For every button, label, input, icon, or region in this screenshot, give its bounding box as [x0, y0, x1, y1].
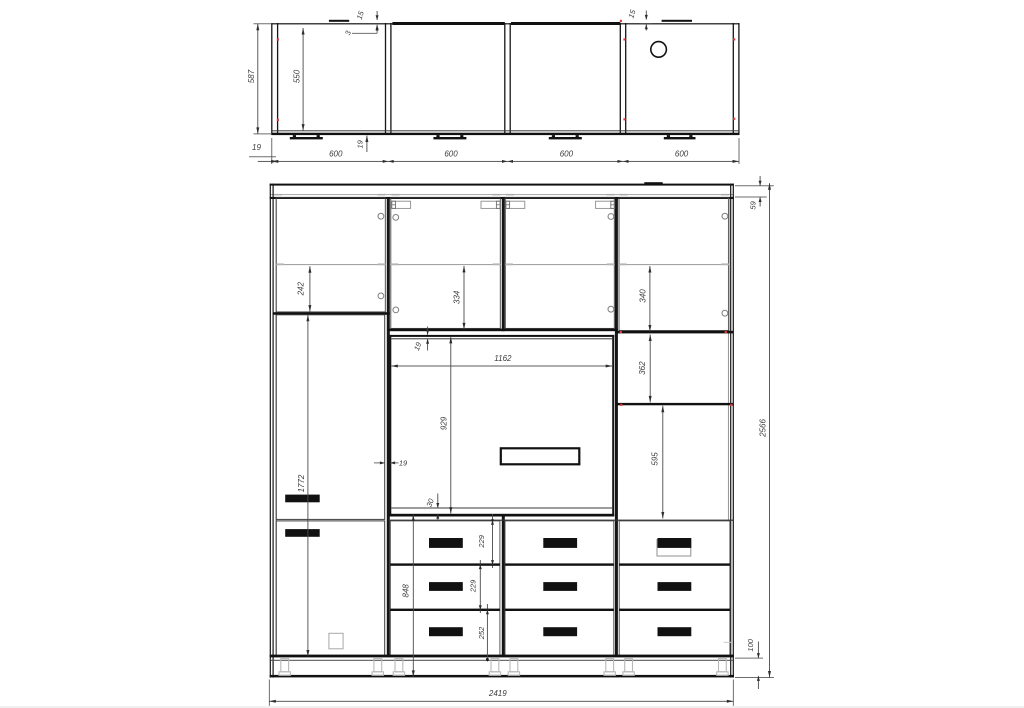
svg-text:600: 600	[329, 149, 343, 158]
svg-text:587: 587	[247, 69, 256, 83]
svg-text:595: 595	[651, 452, 660, 466]
svg-text:600: 600	[560, 149, 574, 158]
svg-text:59: 59	[748, 200, 757, 209]
svg-text:1162: 1162	[494, 354, 512, 363]
svg-text:229: 229	[477, 534, 486, 548]
svg-text:2566: 2566	[758, 419, 767, 438]
svg-text:242: 242	[297, 281, 306, 296]
svg-text:1772: 1772	[297, 474, 306, 492]
svg-text:929: 929	[439, 416, 448, 430]
svg-text:252: 252	[477, 626, 486, 640]
svg-text:600: 600	[444, 149, 458, 158]
svg-text:19: 19	[252, 143, 261, 152]
svg-text:340: 340	[638, 289, 647, 303]
svg-text:19: 19	[356, 139, 365, 148]
svg-text:19: 19	[399, 458, 408, 467]
svg-text:100: 100	[746, 638, 755, 651]
svg-text:600: 600	[675, 149, 689, 158]
svg-text:334: 334	[452, 290, 461, 304]
svg-text:229: 229	[468, 579, 477, 593]
svg-text:2419: 2419	[488, 689, 507, 698]
svg-text:362: 362	[638, 361, 647, 375]
svg-text:848: 848	[401, 584, 410, 598]
svg-text:550: 550	[292, 69, 301, 83]
